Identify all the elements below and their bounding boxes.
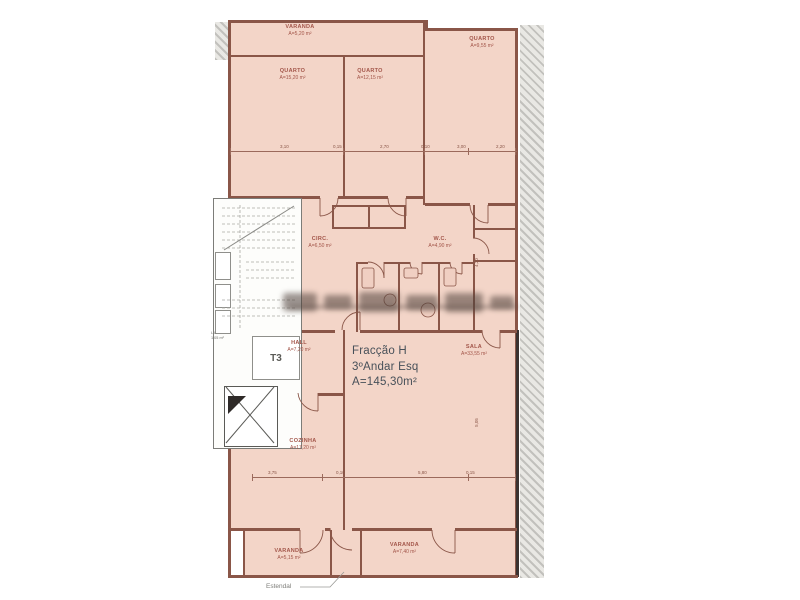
unit-fraction: Fracção H [352, 344, 472, 360]
dim-tick [468, 474, 469, 481]
duct-area: 1,05 m² [211, 336, 224, 340]
wall [228, 20, 231, 200]
dim-value: 3,00 [457, 144, 466, 149]
dim-tick [230, 148, 231, 155]
wall [360, 330, 482, 333]
wall [228, 445, 231, 578]
dim-value: 0,15 [333, 144, 342, 149]
wall [475, 228, 517, 230]
room-name: CIRC. [296, 236, 344, 243]
watermark-blob [359, 292, 399, 312]
wall [455, 528, 517, 531]
dim-value: 5,05 [474, 418, 479, 427]
room-name: QUARTO [330, 68, 410, 75]
wall [228, 20, 428, 23]
dim-value: 2,20 [496, 144, 505, 149]
unit-floor: 3ºAndar Esq [352, 360, 472, 376]
wall [384, 262, 410, 264]
room-label-wc: W.C. A=4,90 m² [418, 236, 462, 249]
party-wall-hatch [520, 25, 544, 578]
room-area: A=12,15 m² [330, 75, 410, 81]
dim-tick [468, 148, 469, 155]
left-edge-hatch [215, 22, 228, 60]
wall [422, 262, 450, 264]
wall [352, 528, 432, 531]
room-area: A=17,20 m² [268, 445, 338, 451]
dim-tick [515, 474, 516, 481]
dimension-line [252, 477, 516, 478]
room-label-quarto-2: QUARTO A=12,15 m² [330, 68, 410, 81]
wall [338, 196, 388, 199]
room-label-hall: HALL A=7,20 m² [276, 340, 322, 353]
room-name: W.C. [418, 236, 462, 243]
room-area: A=5,15 m² [250, 555, 328, 561]
wall [488, 203, 518, 206]
room-area: A=6,50 m² [296, 243, 344, 249]
closet-wall [332, 205, 334, 229]
wall [228, 575, 518, 578]
wall [406, 196, 425, 199]
dim-value: 0,10 [421, 144, 430, 149]
wall-structural [516, 330, 519, 577]
duct-abbr: L.L. [211, 331, 217, 335]
wall [475, 260, 517, 262]
room-area: A=7,40 m² [362, 549, 447, 555]
floor-plan-scan: L.L. 1,05 m² T3 [0, 0, 800, 600]
duct-box [215, 252, 231, 280]
room-name: COZINHA [268, 438, 338, 445]
dim-value: 5,80 [418, 470, 427, 475]
estendal-caption: Estendal [266, 583, 291, 590]
room-area: A=15,20 m² [250, 75, 335, 81]
wall [318, 393, 345, 396]
duct-box [215, 284, 231, 308]
closet-wall [368, 205, 370, 229]
wall [425, 203, 470, 206]
wall [473, 205, 475, 238]
room-name: HALL [276, 340, 322, 347]
wall [330, 530, 332, 576]
room-name: VARANDA [362, 542, 447, 549]
room-area: A=9,55 m² [448, 43, 516, 49]
wall [500, 330, 517, 333]
room-name: QUARTO [448, 36, 516, 43]
room-name: QUARTO [250, 68, 335, 75]
room-label-varanda-bl: VARANDA A=5,15 m² [250, 548, 328, 561]
dim-tick [515, 148, 516, 155]
wall [425, 20, 428, 31]
room-label-circ: CIRC. A=6,50 m² [296, 236, 344, 249]
room-name: VARANDA [250, 548, 328, 555]
room-label-quarto-3: QUARTO A=9,55 m² [448, 36, 516, 49]
room-label-quarto-1: QUARTO A=15,20 m² [250, 68, 335, 81]
dim-tick [252, 474, 253, 481]
dim-value: 0,10 [336, 470, 345, 475]
room-label-cozinha: COZINHA A=17,20 m² [268, 438, 338, 451]
dim-value: 2,70 [380, 144, 389, 149]
room-area: A=4,90 m² [418, 243, 462, 249]
room-name: VARANDA [255, 24, 345, 31]
wall [243, 530, 245, 576]
closet-wall [404, 205, 406, 229]
wall [423, 20, 425, 205]
dim-tick [343, 148, 344, 155]
dim-value: 3,10 [280, 144, 289, 149]
wall [228, 528, 300, 531]
dim-value: 3,75 [268, 470, 277, 475]
unit-area: A=145,30m² [352, 375, 472, 391]
watermark [283, 283, 523, 321]
watermark-smear [290, 305, 518, 309]
balcony-railing [228, 55, 425, 57]
room-area: A=7,20 m² [276, 347, 322, 353]
dim-value: 4,20 [474, 258, 479, 267]
duct-label: L.L. 1,05 m² [211, 331, 245, 341]
room-area: A=5,20 m² [255, 31, 345, 37]
dimension-line [230, 151, 517, 152]
wall [425, 28, 518, 31]
dim-tick [322, 474, 323, 481]
dim-tick [424, 148, 425, 155]
typology-label: T3 [270, 353, 282, 364]
unit-identification: Fracção H 3ºAndar Esq A=145,30m² [352, 344, 472, 391]
room-label-varanda-br: VARANDA A=7,40 m² [362, 542, 447, 555]
room-label-varanda-top: VARANDA A=5,20 m² [255, 24, 345, 37]
dim-value: 0,15 [466, 470, 475, 475]
wall [343, 330, 345, 530]
